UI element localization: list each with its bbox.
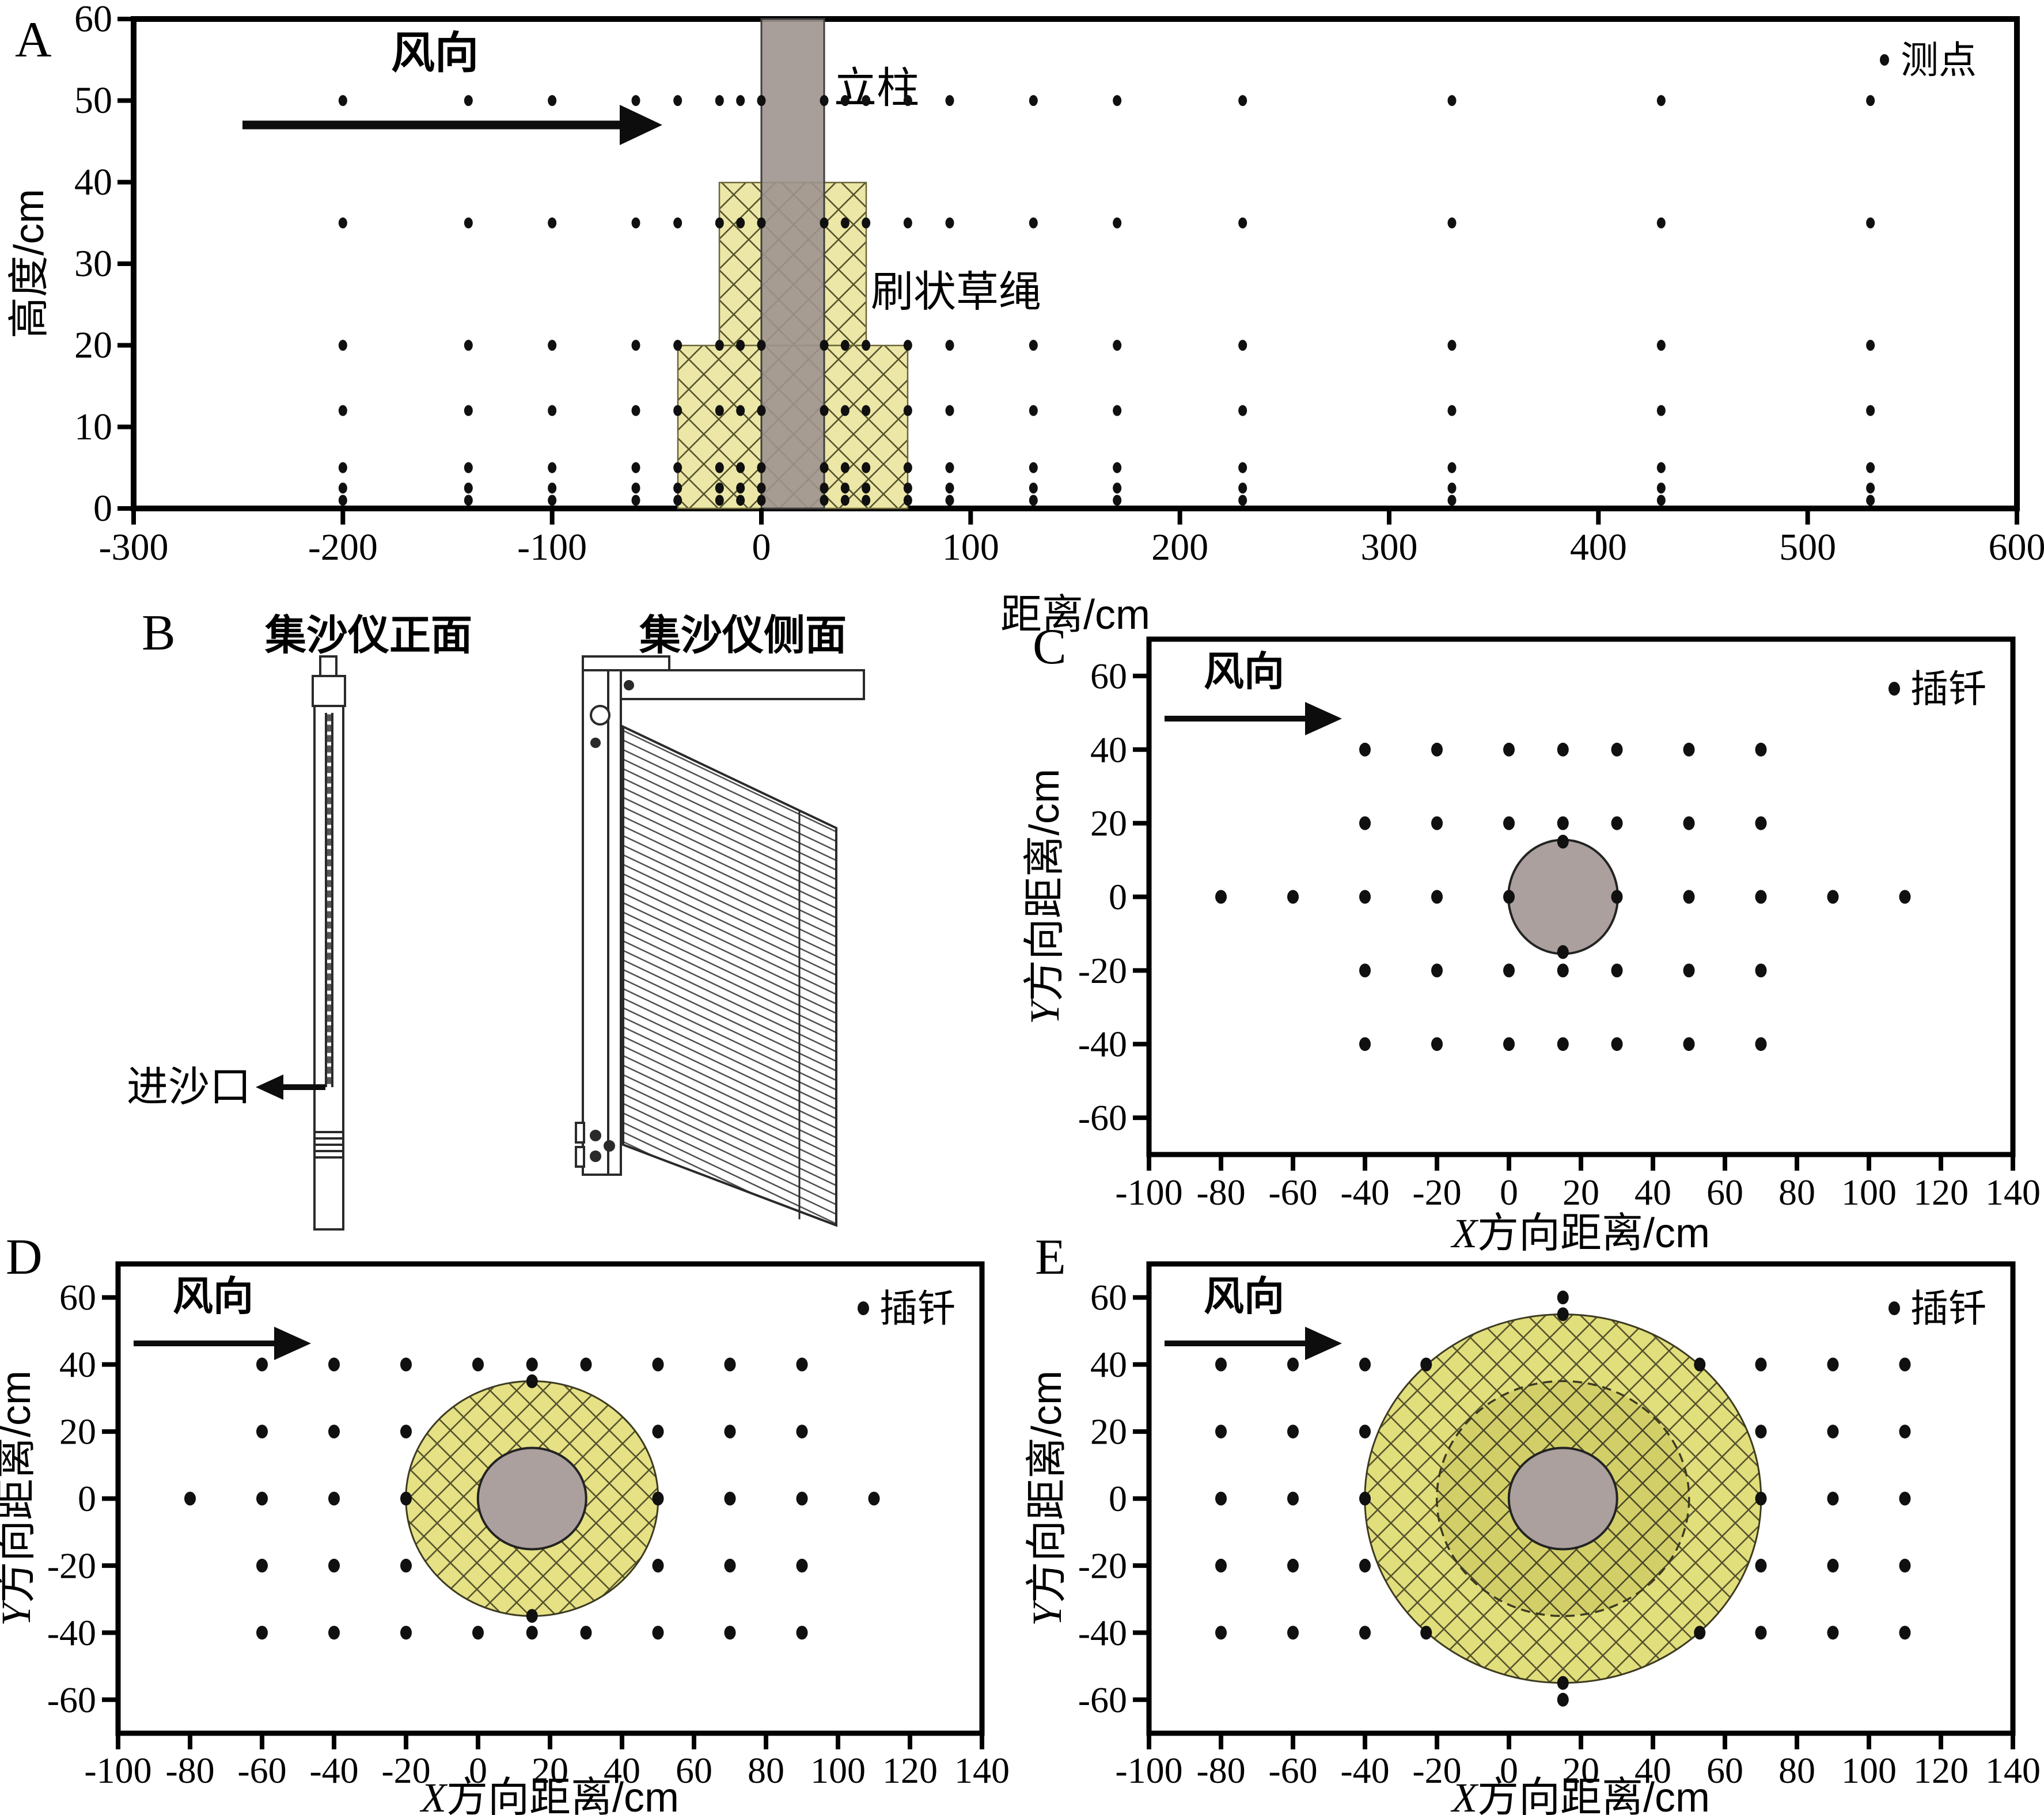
x-tick-label: -60 xyxy=(237,1750,286,1791)
y-tick-label: -60 xyxy=(1078,1098,1127,1138)
measurement-point xyxy=(1657,340,1666,351)
measurement-point xyxy=(736,218,745,229)
panel-e-letter: E xyxy=(1035,1229,1066,1285)
measurement-point xyxy=(1215,890,1227,904)
x-tick-label: 140 xyxy=(1985,1172,2041,1213)
x-tick-label: 0 xyxy=(752,526,771,568)
sampler-head xyxy=(313,676,345,706)
measurement-point xyxy=(862,462,870,473)
measurement-point xyxy=(1447,340,1456,351)
measurement-point xyxy=(653,1626,664,1639)
straw-rope-label: 刷状草绳 xyxy=(871,268,1041,316)
panel-e-cylinder xyxy=(1509,1448,1617,1550)
panel-e-wind-arrow-head xyxy=(1305,1327,1342,1360)
measurement-point xyxy=(736,405,745,416)
measurement-point xyxy=(820,340,828,351)
x-tick-label: 120 xyxy=(882,1750,938,1791)
measurement-point xyxy=(715,340,724,351)
x-tick-label: -200 xyxy=(308,526,378,568)
panel-a-legend-dot-icon xyxy=(1880,54,1889,66)
measurement-point xyxy=(1113,495,1121,506)
panel-e: E 风向 插钎 X方向距离/cm Y方向距离/cm -100-80-60-40-… xyxy=(1024,1229,2041,1815)
measurement-point xyxy=(715,218,724,229)
measurement-point xyxy=(1899,1626,1911,1639)
measurement-point xyxy=(339,95,347,106)
measurement-point xyxy=(632,495,640,506)
measurement-point xyxy=(1431,890,1443,904)
measurement-point xyxy=(256,1425,268,1438)
measurement-point xyxy=(632,483,640,493)
y-tick-label: 30 xyxy=(74,242,112,284)
measurement-point xyxy=(328,1626,340,1639)
measurement-point xyxy=(1866,483,1875,493)
measurement-point xyxy=(1359,1425,1371,1438)
measurement-point xyxy=(464,405,473,416)
measurement-point xyxy=(757,495,766,506)
measurement-point xyxy=(820,483,828,493)
measurement-point xyxy=(904,405,912,416)
measurement-point xyxy=(1215,1559,1227,1573)
measurement-point xyxy=(328,1492,340,1506)
measurement-point xyxy=(400,1626,412,1639)
measurement-point xyxy=(1238,95,1247,106)
measurement-point xyxy=(464,340,473,351)
measurement-point xyxy=(1029,495,1038,506)
measurement-point xyxy=(736,462,745,473)
x-tick-label: -40 xyxy=(1340,1750,1389,1791)
measurement-point xyxy=(725,1358,736,1372)
x-tick-label: -300 xyxy=(99,526,169,568)
measurement-point xyxy=(1827,1559,1839,1573)
x-tick-label: 120 xyxy=(1913,1750,1969,1791)
measurement-point xyxy=(1447,462,1456,473)
measurement-point xyxy=(725,1626,736,1639)
measurement-point xyxy=(715,95,724,106)
x-tick-label: 80 xyxy=(1778,1172,1815,1213)
y-tick-label: 40 xyxy=(1090,729,1127,770)
x-tick-label: -100 xyxy=(84,1750,151,1791)
measurement-point xyxy=(1029,405,1038,416)
measurement-point xyxy=(1657,483,1666,493)
measurement-point xyxy=(464,483,473,493)
panel-c-legend-label: 插钎 xyxy=(1910,667,1986,710)
measurement-point xyxy=(757,405,766,416)
x-tick-label: 40 xyxy=(604,1750,640,1791)
panel-d-cylinder xyxy=(478,1448,586,1550)
y-tick-label: -40 xyxy=(1078,1612,1127,1653)
measurement-point xyxy=(1866,462,1875,473)
x-tick-label: 300 xyxy=(1360,526,1417,568)
x-tick-label: 400 xyxy=(1570,526,1627,568)
measurement-point xyxy=(1287,1559,1299,1573)
measurement-point xyxy=(464,218,473,229)
measurement-point xyxy=(1447,483,1456,493)
measurement-point xyxy=(1611,743,1623,757)
measurement-point xyxy=(1287,1626,1299,1639)
x-tick-label: 0 xyxy=(1500,1172,1518,1213)
panel-a-letter: A xyxy=(15,12,52,68)
measurement-point xyxy=(725,1559,736,1573)
measurement-point xyxy=(673,405,682,416)
measurement-point xyxy=(945,462,954,473)
x-tick-label: -60 xyxy=(1268,1172,1317,1213)
x-tick-label: 140 xyxy=(1985,1750,2041,1791)
measurement-point xyxy=(904,483,912,493)
x-tick-label: -100 xyxy=(1115,1750,1182,1791)
measurement-point xyxy=(904,340,912,351)
measurement-point xyxy=(1215,1492,1227,1506)
measurement-point xyxy=(1611,890,1623,904)
measurement-point xyxy=(1113,340,1121,351)
x-tick-label: -40 xyxy=(1340,1172,1389,1213)
measurement-point xyxy=(757,483,766,493)
measurement-point xyxy=(339,218,347,229)
measurement-point xyxy=(1694,1626,1705,1639)
measurement-point xyxy=(526,1626,538,1639)
measurement-point xyxy=(715,495,724,506)
measurement-point xyxy=(1827,1626,1839,1639)
measurement-point xyxy=(1683,817,1695,830)
x-tick-label: 200 xyxy=(1151,526,1208,568)
measurement-point xyxy=(841,218,850,229)
measurement-point xyxy=(1503,1037,1515,1051)
measurement-point xyxy=(1420,1626,1432,1639)
measurement-point xyxy=(797,1425,808,1438)
panel-d-yaxis-title: Y方向距离/cm xyxy=(0,1370,39,1626)
panel-d-wind-arrow-head xyxy=(274,1327,311,1360)
measurement-point xyxy=(945,483,954,493)
measurement-point xyxy=(653,1559,664,1573)
panel-c-cylinder xyxy=(1508,840,1618,954)
measurement-point xyxy=(1827,1492,1839,1506)
measurement-point xyxy=(797,1559,808,1573)
sampler-side-bolt-small xyxy=(605,1141,614,1150)
sampler-side-bolt-small xyxy=(625,681,633,689)
x-tick-label: -60 xyxy=(1268,1750,1317,1791)
measurement-point xyxy=(1557,1290,1569,1304)
measurement-point xyxy=(862,405,870,416)
x-tick-label: 80 xyxy=(748,1750,784,1791)
measurement-point xyxy=(1029,483,1038,493)
y-tick-label: 50 xyxy=(74,79,112,121)
panel-a: A 风向 立柱 刷状草绳 测点 距离/cm 高度/cm -300-200-100… xyxy=(6,0,2044,638)
measurement-point xyxy=(1611,817,1623,830)
panel-d-legend-dot-icon xyxy=(858,1301,869,1315)
measurement-point xyxy=(632,218,640,229)
sampler-side-bolt xyxy=(591,706,609,724)
measurement-point xyxy=(1238,405,1247,416)
measurement-point xyxy=(862,95,870,106)
measurement-point xyxy=(841,462,850,473)
measurement-point xyxy=(1447,218,1456,229)
measurement-point xyxy=(1611,963,1623,977)
measurement-point xyxy=(1447,95,1456,106)
measurement-point xyxy=(1657,495,1666,506)
measurement-point xyxy=(841,495,850,506)
measurement-point xyxy=(632,95,640,106)
y-tick-label: 0 xyxy=(78,1478,96,1519)
pole-rect xyxy=(761,19,824,508)
measurement-point xyxy=(1215,1425,1227,1438)
measurement-point xyxy=(725,1425,736,1438)
measurement-point xyxy=(328,1425,340,1438)
measurement-point xyxy=(1029,95,1038,106)
measurement-point xyxy=(820,218,828,229)
measurement-point xyxy=(1657,462,1666,473)
measurement-point xyxy=(904,218,912,229)
measurement-point xyxy=(1557,817,1569,830)
y-tick-label: 20 xyxy=(59,1411,96,1452)
measurement-point xyxy=(1755,1037,1767,1051)
measurement-point xyxy=(339,405,347,416)
measurement-point xyxy=(673,462,682,473)
measurement-point xyxy=(653,1492,664,1506)
measurement-point xyxy=(1287,1425,1299,1438)
measurement-point xyxy=(184,1492,196,1506)
measurement-point xyxy=(1755,1358,1767,1372)
x-tick-label: -20 xyxy=(1412,1750,1461,1791)
measurement-point xyxy=(1899,890,1911,904)
sampler-side-top-tab xyxy=(583,656,669,670)
y-tick-label: 40 xyxy=(74,161,112,203)
panel-b-letter: B xyxy=(142,605,176,661)
panel-c-wind-label: 风向 xyxy=(1204,649,1284,694)
measurement-point xyxy=(1431,1037,1443,1051)
x-tick-label: 100 xyxy=(810,1750,866,1791)
sampler-side-bolt-small xyxy=(591,739,600,747)
measurement-point xyxy=(464,462,473,473)
x-tick-label: -100 xyxy=(1115,1172,1182,1213)
measurement-point xyxy=(1866,95,1875,106)
measurement-point xyxy=(1657,218,1666,229)
panel-c: C 风向 插钎 X方向距离/cm Y方向距离/cm -100-80-60-40-… xyxy=(1022,619,2041,1256)
measurement-point xyxy=(548,462,556,473)
panel-c-legend-dot-icon xyxy=(1888,682,1900,696)
measurement-point xyxy=(869,1492,880,1506)
measurement-point xyxy=(1503,743,1515,757)
measurement-point xyxy=(1557,1307,1569,1321)
y-tick-label: -60 xyxy=(47,1679,96,1720)
sampler-side-left-column xyxy=(583,670,621,1175)
x-tick-label: -80 xyxy=(165,1750,214,1791)
measurement-point xyxy=(945,218,954,229)
measurement-point xyxy=(1431,743,1443,757)
measurement-point xyxy=(1287,890,1299,904)
measurement-point xyxy=(1683,963,1695,977)
x-tick-label: 20 xyxy=(1563,1750,1599,1791)
x-tick-label: -80 xyxy=(1196,1750,1245,1791)
x-tick-label: 80 xyxy=(1778,1750,1815,1791)
x-tick-label: 20 xyxy=(532,1750,568,1791)
panel-e-legend-label: 插钎 xyxy=(1910,1287,1986,1330)
measurement-point xyxy=(1113,95,1121,106)
measurement-point xyxy=(526,1358,538,1372)
measurement-point xyxy=(1557,743,1569,757)
measurement-point xyxy=(464,495,473,506)
measurement-point xyxy=(862,495,870,506)
measurement-point xyxy=(820,405,828,416)
measurement-point xyxy=(1238,495,1247,506)
measurement-point xyxy=(1683,890,1695,904)
measurement-point xyxy=(862,340,870,351)
x-tick-label: 60 xyxy=(676,1750,712,1791)
measurement-point xyxy=(1866,495,1875,506)
measurement-point xyxy=(339,495,347,506)
measurement-point xyxy=(673,218,682,229)
inlet-arrow-head xyxy=(256,1074,283,1100)
measurement-point xyxy=(1113,405,1121,416)
measurement-point xyxy=(339,483,347,493)
y-tick-label: -60 xyxy=(1078,1679,1127,1720)
measurement-point xyxy=(632,405,640,416)
y-tick-label: 10 xyxy=(74,406,112,448)
panel-d-letter: D xyxy=(6,1229,43,1285)
measurement-point xyxy=(1431,817,1443,830)
measurement-point xyxy=(400,1492,412,1506)
x-tick-label: 40 xyxy=(1635,1172,1671,1213)
measurement-point xyxy=(673,340,682,351)
y-tick-label: 20 xyxy=(1090,803,1127,844)
measurement-point xyxy=(1899,1559,1911,1573)
measurement-point xyxy=(339,462,347,473)
y-tick-label: 60 xyxy=(74,0,112,40)
measurement-point xyxy=(1755,817,1767,830)
panel-d-legend-label: 插钎 xyxy=(879,1287,955,1330)
measurement-point xyxy=(548,95,556,106)
panel-b: B 集沙仪正面 集沙仪侧面 进沙口 xyxy=(127,605,864,1229)
x-tick-label: 60 xyxy=(1707,1172,1743,1213)
x-tick-label: 20 xyxy=(1563,1172,1599,1213)
y-tick-label: 60 xyxy=(59,1277,96,1318)
panel-a-points-and-ticks: -300-200-1000100200300400500600010203040… xyxy=(74,0,2044,568)
measurement-point xyxy=(581,1358,592,1372)
measurement-point xyxy=(1113,218,1121,229)
y-tick-label: 20 xyxy=(74,324,112,366)
x-tick-label: 100 xyxy=(942,526,999,568)
x-tick-label: 40 xyxy=(1635,1750,1671,1791)
measurement-point xyxy=(736,483,745,493)
measurement-point xyxy=(1359,743,1371,757)
measurement-point xyxy=(757,95,766,106)
measurement-point xyxy=(472,1358,484,1372)
panel-e-yaxis-title: Y方向距离/cm xyxy=(1024,1370,1070,1626)
measurement-point xyxy=(1238,462,1247,473)
y-tick-label: 60 xyxy=(1090,1277,1127,1318)
measurement-point xyxy=(715,483,724,493)
measurement-point xyxy=(1420,1358,1432,1372)
measurement-point xyxy=(1683,743,1695,757)
measurement-point xyxy=(328,1358,340,1372)
measurement-point xyxy=(400,1559,412,1573)
measurement-point xyxy=(797,1358,808,1372)
sampler-bottom-tube xyxy=(314,1157,343,1229)
sampler-front-drawing xyxy=(313,656,345,1229)
measurement-point xyxy=(1359,1037,1371,1051)
measurement-point xyxy=(1557,1037,1569,1051)
measurement-point xyxy=(841,340,850,351)
measurement-point xyxy=(1657,405,1666,416)
multi-panel-figure: A 风向 立柱 刷状草绳 测点 距离/cm 高度/cm -300-200-100… xyxy=(0,0,2044,1815)
measurement-point xyxy=(1755,1425,1767,1438)
measurement-point xyxy=(736,340,745,351)
measurement-point xyxy=(862,483,870,493)
measurement-point xyxy=(339,340,347,351)
measurement-point xyxy=(1694,1358,1705,1372)
panel-a-wind-label: 风向 xyxy=(391,29,479,78)
y-tick-label: 0 xyxy=(1109,876,1127,917)
measurement-point xyxy=(725,1492,736,1506)
panel-c-yaxis-title: Y方向距离/cm xyxy=(1022,769,1068,1024)
measurement-point xyxy=(256,1492,268,1506)
measurement-point xyxy=(256,1559,268,1573)
x-tick-label: -20 xyxy=(381,1750,430,1791)
x-tick-label: -20 xyxy=(1412,1172,1461,1213)
inlet-label: 进沙口 xyxy=(127,1064,251,1110)
panel-d: D 风向 插钎 X方向距离/cm Y方向距离/cm -100-80-60-40-… xyxy=(0,1229,1010,1815)
measurement-point xyxy=(653,1358,664,1372)
measurement-point xyxy=(1866,340,1875,351)
measurement-point xyxy=(736,495,745,506)
measurement-point xyxy=(1029,340,1038,351)
measurement-point xyxy=(1866,218,1875,229)
sampler-side-title: 集沙仪侧面 xyxy=(639,613,847,659)
panel-a-wind-arrow-head xyxy=(620,105,662,145)
panel-d-wind-label: 风向 xyxy=(173,1274,253,1319)
y-tick-label: 40 xyxy=(59,1344,96,1385)
measurement-point xyxy=(632,462,640,473)
panel-a-plot-frame xyxy=(134,19,2017,508)
measurement-point xyxy=(904,95,912,106)
measurement-point xyxy=(526,1374,538,1388)
measurement-point xyxy=(1287,1358,1299,1372)
y-tick-label: 60 xyxy=(1090,655,1127,696)
measurement-point xyxy=(1827,890,1839,904)
measurement-point xyxy=(1557,963,1569,977)
panel-e-legend-dot-icon xyxy=(1888,1301,1900,1315)
sampler-top-knob xyxy=(320,656,336,676)
measurement-point xyxy=(1557,1693,1569,1707)
measurement-point xyxy=(400,1358,412,1372)
measurement-point xyxy=(820,495,828,506)
measurement-point xyxy=(1503,817,1515,830)
sampler-side-bolt-small xyxy=(591,1131,600,1140)
y-tick-label: -20 xyxy=(1078,1545,1127,1586)
y-tick-label: -20 xyxy=(47,1545,96,1586)
measurement-point xyxy=(1899,1425,1911,1438)
measurement-point xyxy=(256,1358,268,1372)
measurement-point xyxy=(1683,1037,1695,1051)
measurement-point xyxy=(632,340,640,351)
measurement-point xyxy=(1899,1358,1911,1372)
measurement-point xyxy=(1359,1626,1371,1639)
x-tick-label: -80 xyxy=(1196,1172,1245,1213)
measurement-point xyxy=(673,95,682,106)
measurement-point xyxy=(1359,890,1371,904)
measurement-point xyxy=(904,495,912,506)
measurement-point xyxy=(673,495,682,506)
measurement-point xyxy=(1827,1425,1839,1438)
sampler-front-title: 集沙仪正面 xyxy=(264,613,472,659)
sampler-side-louver-panel xyxy=(623,727,836,1225)
measurement-point xyxy=(548,483,556,493)
measurement-point xyxy=(841,95,850,106)
y-tick-label: -40 xyxy=(47,1612,96,1653)
y-tick-label: 0 xyxy=(1109,1478,1127,1519)
y-tick-label: -40 xyxy=(1078,1024,1127,1065)
measurement-point xyxy=(526,1609,538,1623)
figure-canvas: A 风向 立柱 刷状草绳 测点 距离/cm 高度/cm -300-200-100… xyxy=(0,0,2044,1815)
measurement-point xyxy=(841,405,850,416)
